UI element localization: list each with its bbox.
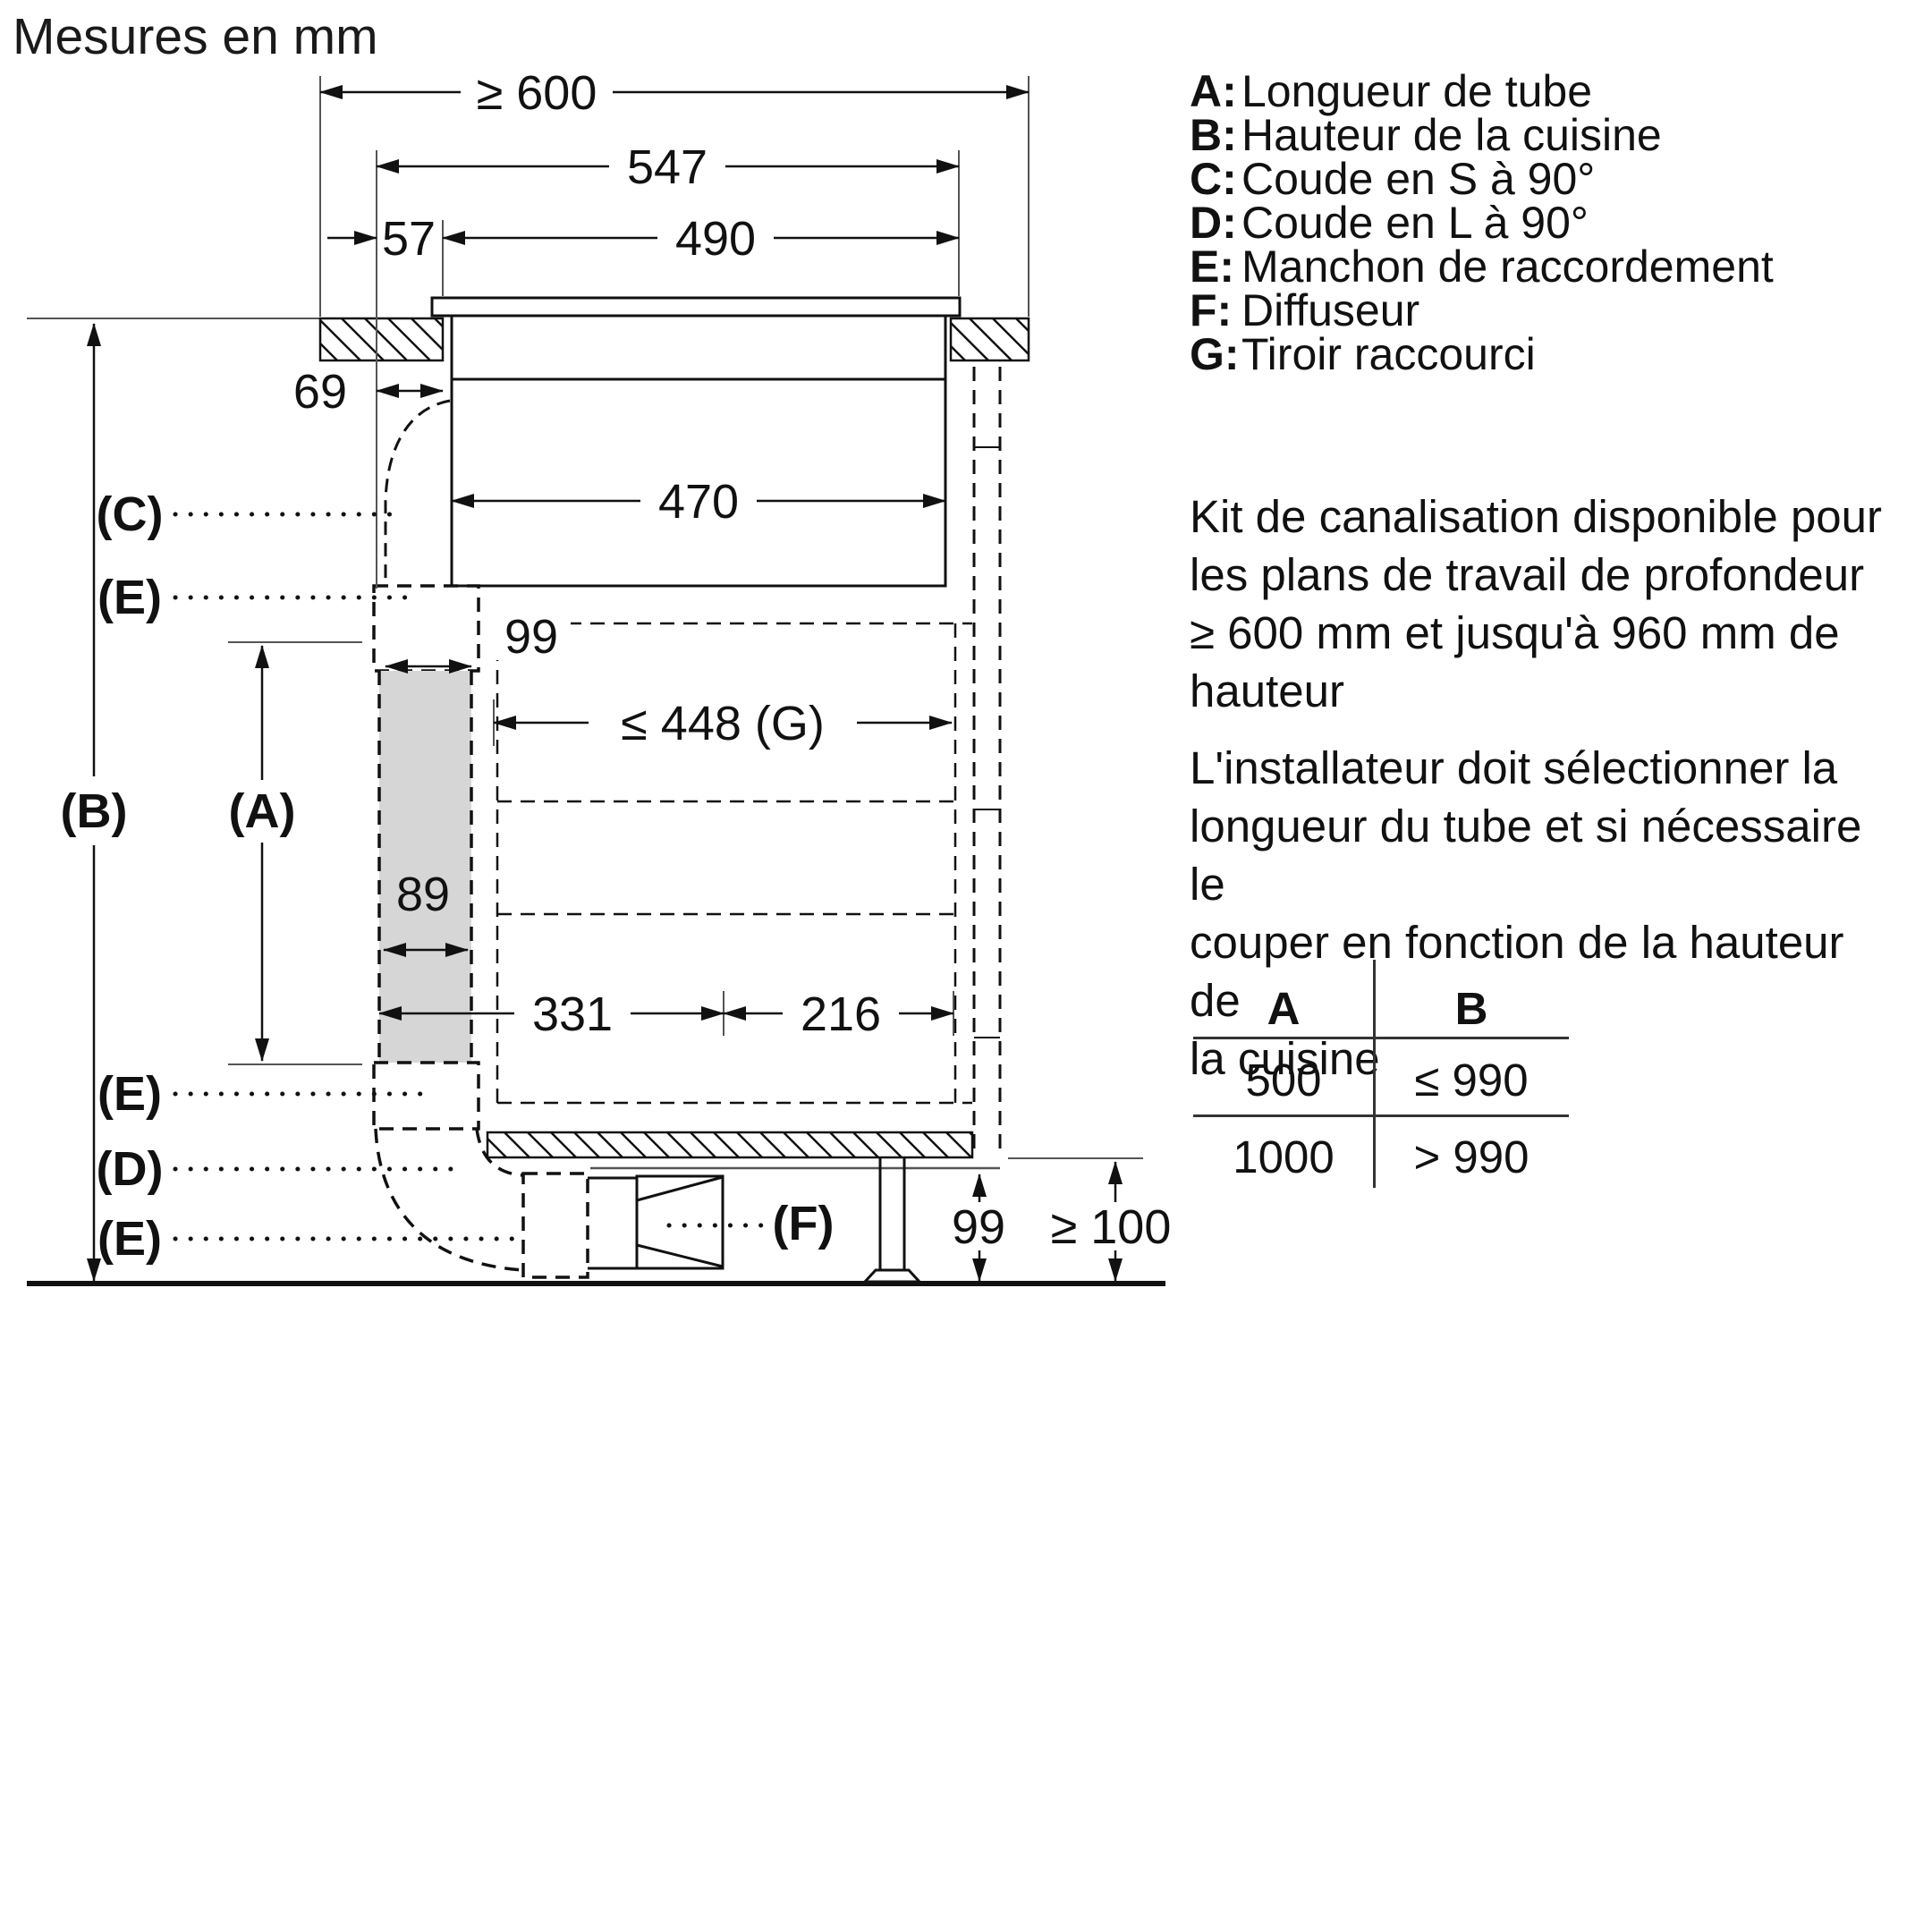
worktop-right-section bbox=[951, 318, 1029, 360]
mark-B: (B) bbox=[61, 784, 128, 838]
mark-C: (C) bbox=[97, 487, 164, 541]
legend-key-A: A: bbox=[1190, 70, 1241, 114]
dim-448-label: ≤ 448 (G) bbox=[621, 697, 825, 750]
table-row-divider bbox=[1193, 1114, 1569, 1117]
mark-D: (D) bbox=[97, 1142, 164, 1196]
table-header-B: B bbox=[1386, 982, 1556, 1035]
dim-57-label: 57 bbox=[382, 212, 436, 266]
legend-item-F: F:Diffuseur bbox=[1190, 289, 1774, 333]
note-installer-line2: longueur du tube et si nécessaire le bbox=[1190, 797, 1905, 913]
legend-item-E: E:Manchon de raccordement bbox=[1190, 245, 1774, 289]
table-vertical-divider bbox=[1373, 960, 1376, 1188]
sleeve-bottom bbox=[523, 1174, 588, 1277]
hob bbox=[432, 298, 960, 586]
legend-key-B: B: bbox=[1190, 114, 1241, 157]
foot-base bbox=[865, 1270, 919, 1282]
note-kit-line4: hauteur bbox=[1190, 662, 1882, 720]
table-cell-a2: 1000 bbox=[1199, 1131, 1368, 1183]
dim-89-label: 89 bbox=[396, 868, 450, 921]
dim-99-sleeve-label: 99 bbox=[504, 610, 558, 664]
dim-69-label: 69 bbox=[293, 365, 347, 419]
table-header-A: A bbox=[1199, 982, 1368, 1035]
legend-label-A: Longueur de tube bbox=[1241, 66, 1592, 116]
legend-item-A: A:Longueur de tube bbox=[1190, 70, 1774, 114]
mark-F: (F) bbox=[773, 1197, 835, 1250]
legend-key-E: E: bbox=[1190, 245, 1241, 289]
note-kit: Kit de canalisation disponible pour les … bbox=[1190, 487, 1882, 720]
dimension-texts: ≥ 600 547 57 490 69 470 99 ≤ 448 (G) 89 … bbox=[293, 66, 1171, 1254]
legend-key-D: D: bbox=[1190, 201, 1241, 245]
mark-A: (A) bbox=[229, 784, 296, 838]
tube-length-table: A B 500 ≤ 990 1000 > 990 bbox=[1190, 948, 1583, 1207]
dim-490-label: 490 bbox=[675, 212, 756, 266]
legend: A:Longueur de tube B:Hauteur de la cuisi… bbox=[1190, 70, 1774, 377]
legend-item-B: B:Hauteur de la cuisine bbox=[1190, 114, 1774, 157]
note-kit-line3: ≥ 600 mm et jusqu'à 960 mm de bbox=[1190, 604, 1882, 662]
table-cell-b2: > 990 bbox=[1386, 1131, 1556, 1183]
dim-99-plinth-label: 99 bbox=[952, 1200, 1005, 1254]
dim-100-label: ≥ 100 bbox=[1051, 1200, 1172, 1254]
mark-E-top: (E) bbox=[97, 571, 162, 624]
note-kit-line2: les plans de travail de profondeur bbox=[1190, 546, 1882, 604]
legend-label-E: Manchon de raccordement bbox=[1241, 241, 1774, 292]
dim-470-label: 470 bbox=[658, 475, 739, 529]
legend-item-C: C:Coude en S à 90° bbox=[1190, 157, 1774, 201]
tube-fill bbox=[379, 671, 471, 1063]
worktop-left-section bbox=[320, 318, 443, 360]
legend-label-G: Tiroir raccourci bbox=[1241, 329, 1536, 379]
mark-E-mid: (E) bbox=[97, 1067, 162, 1121]
legend-item-G: G:Tiroir raccourci bbox=[1190, 333, 1774, 377]
table-header-divider bbox=[1193, 1037, 1569, 1039]
dim-text-backgrounds bbox=[461, 68, 1190, 1250]
mark-E-bottom: (E) bbox=[97, 1212, 162, 1266]
page: Mesures en mm bbox=[0, 0, 1932, 1932]
note-kit-line1: Kit de canalisation disponible pour bbox=[1190, 487, 1882, 546]
s-bend-duct bbox=[386, 401, 450, 583]
legend-label-B: Hauteur de la cuisine bbox=[1241, 110, 1662, 160]
cabinet-bottom-panel bbox=[487, 1132, 972, 1157]
legend-key-F: F: bbox=[1190, 289, 1241, 333]
dim-216-label: 216 bbox=[801, 987, 881, 1041]
legend-label-D: Coude en L à 90° bbox=[1241, 198, 1589, 248]
installation-diagram: ≥ 600 547 57 490 69 470 99 ≤ 448 (G) 89 … bbox=[0, 0, 1190, 1360]
legend-label-F: Diffuseur bbox=[1241, 285, 1419, 335]
legend-key-G: G: bbox=[1190, 333, 1241, 377]
hob-body bbox=[452, 316, 945, 586]
note-installer-line1: L'installateur doit sélectionner la bbox=[1190, 739, 1905, 797]
hob-glass-top bbox=[432, 298, 960, 316]
dim-600-label: ≥ 600 bbox=[477, 66, 597, 120]
dim-547-label: 547 bbox=[627, 140, 708, 194]
legend-label-C: Coude en S à 90° bbox=[1241, 154, 1595, 204]
legend-item-D: D:Coude en L à 90° bbox=[1190, 201, 1774, 245]
dim-331-label: 331 bbox=[532, 987, 613, 1041]
legend-key-C: C: bbox=[1190, 157, 1241, 201]
table-cell-b1: ≤ 990 bbox=[1386, 1054, 1556, 1106]
table-cell-a1: 500 bbox=[1199, 1054, 1368, 1106]
